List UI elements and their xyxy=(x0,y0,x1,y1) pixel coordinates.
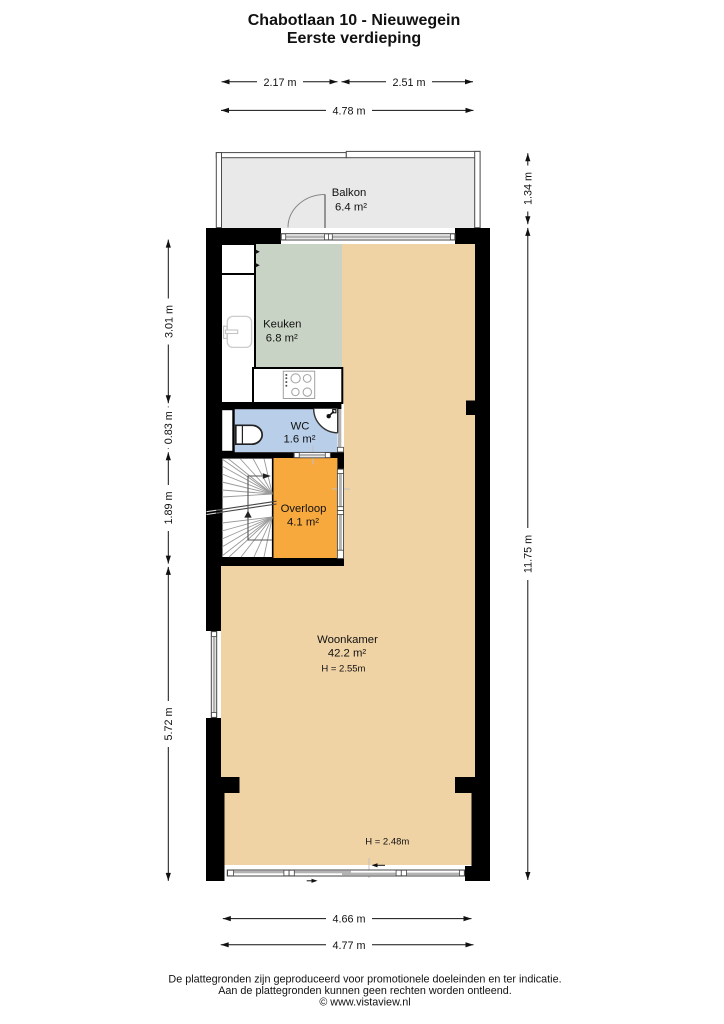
svg-text:3.01 m: 3.01 m xyxy=(163,305,175,338)
svg-text:1.34 m: 1.34 m xyxy=(523,172,535,205)
svg-text:H = 2.48m: H = 2.48m xyxy=(365,837,409,848)
svg-text:6.4 m²: 6.4 m² xyxy=(335,201,367,213)
svg-text:4.78 m: 4.78 m xyxy=(332,105,365,117)
svg-text:Keuken: Keuken xyxy=(263,319,301,331)
svg-text:6.8 m²: 6.8 m² xyxy=(266,333,298,345)
svg-text:42.2 m²: 42.2 m² xyxy=(328,647,367,659)
svg-text:1.6 m²: 1.6 m² xyxy=(283,434,315,446)
svg-text:11.75 m: 11.75 m xyxy=(523,535,535,573)
svg-text:4.1 m²: 4.1 m² xyxy=(287,516,319,528)
svg-text:2.51 m: 2.51 m xyxy=(392,77,425,89)
svg-text:4.66 m: 4.66 m xyxy=(332,914,365,926)
svg-text:1.89 m: 1.89 m xyxy=(163,491,175,524)
svg-text:Woonkamer: Woonkamer xyxy=(317,634,378,646)
svg-text:De plattegronden zijn geproduc: De plattegronden zijn geproduceerd voor … xyxy=(168,973,561,985)
svg-text:H = 2.55m: H = 2.55m xyxy=(321,664,365,675)
svg-text:Balkon: Balkon xyxy=(332,187,367,199)
svg-text:4.77 m: 4.77 m xyxy=(332,940,365,952)
svg-text:WC: WC xyxy=(291,421,310,433)
svg-text:Overloop: Overloop xyxy=(281,503,327,515)
svg-text:Aan de plattegronden kunnen ge: Aan de plattegronden kunnen geen rechten… xyxy=(218,985,512,997)
svg-text:Eerste verdieping: Eerste verdieping xyxy=(287,30,421,47)
svg-text:5.72 m: 5.72 m xyxy=(163,707,175,740)
svg-text:© www.vistaview.nl: © www.vistaview.nl xyxy=(319,996,410,1008)
svg-text:Chabotlaan 10 - Nieuwegein: Chabotlaan 10 - Nieuwegein xyxy=(248,12,460,29)
svg-text:2.17 m: 2.17 m xyxy=(263,77,296,89)
svg-text:0.83 m: 0.83 m xyxy=(163,411,175,444)
